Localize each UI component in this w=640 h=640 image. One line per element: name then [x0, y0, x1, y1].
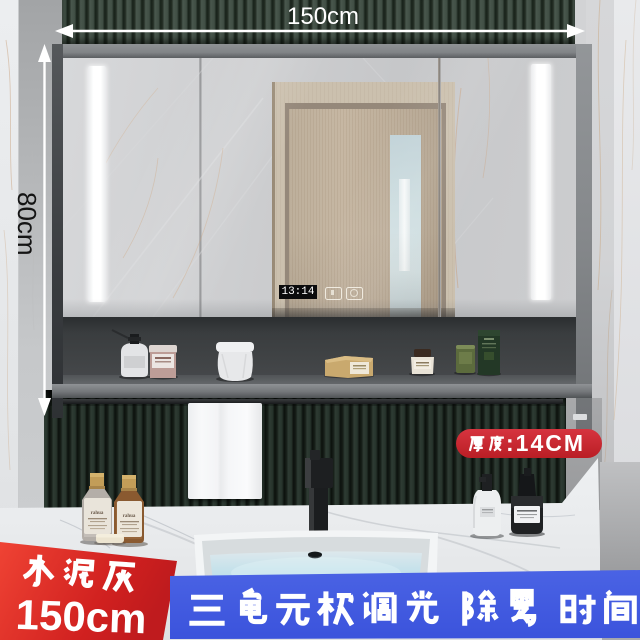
svg-text:150cm: 150cm: [15, 591, 147, 640]
svg-text::14CM: :14CM: [506, 430, 585, 456]
